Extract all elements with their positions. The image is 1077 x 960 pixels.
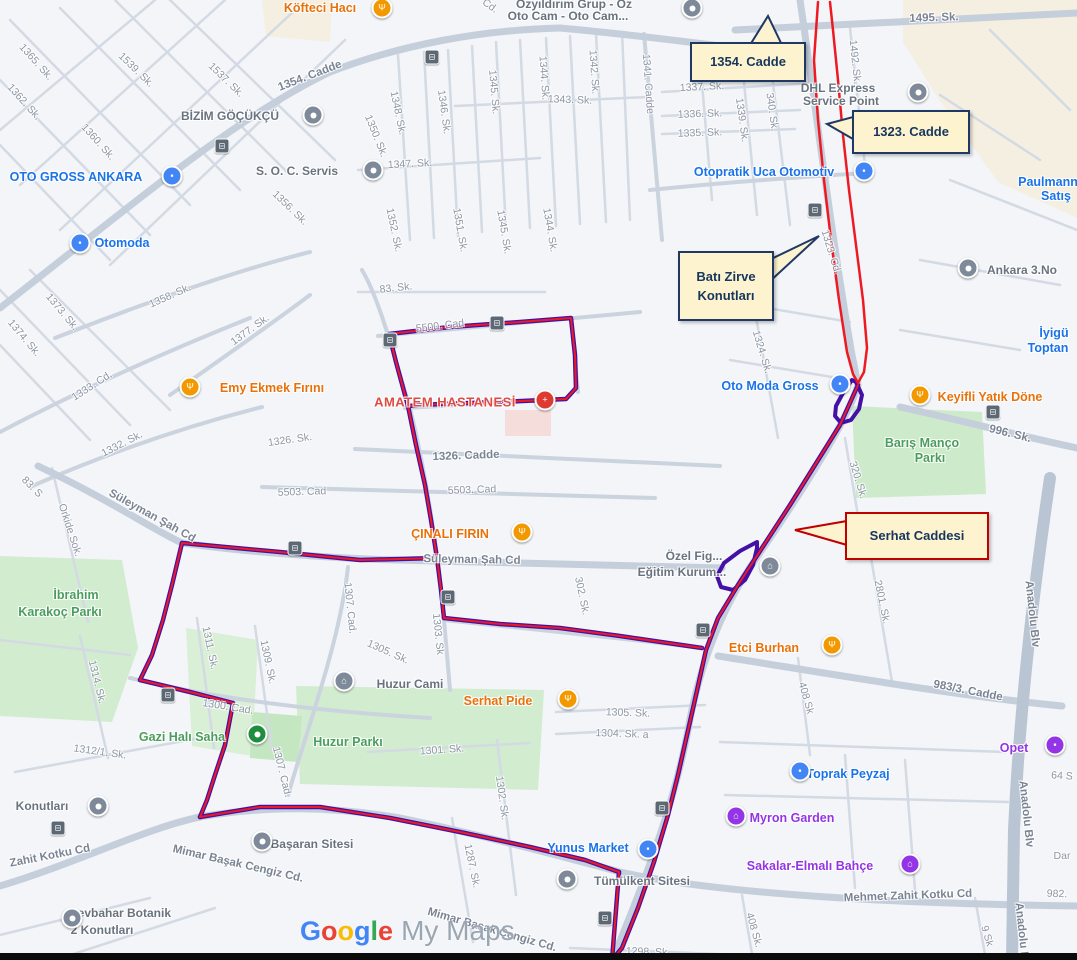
bus-stop-icon[interactable]: ⊟ (288, 541, 303, 556)
google-my-maps-watermark: Google My Maps (300, 915, 515, 947)
route-line-red[interactable] (814, 2, 867, 383)
route-line-purple[interactable] (408, 406, 444, 618)
garden-marker[interactable]: ⌂ (900, 854, 921, 875)
annotation-callout-text: Batı Zirve (696, 267, 755, 287)
sports-field-marker[interactable] (247, 724, 268, 745)
school-marker[interactable]: ⌂ (760, 556, 781, 577)
annotation-callout-text: 1323. Cadde (873, 122, 949, 142)
annotation-callout: 1323. Cadde (852, 110, 970, 154)
restaurant-marker[interactable]: Ψ (180, 377, 201, 398)
annotation-callout-pointer (827, 117, 853, 139)
annotation-callout-text: Serhat Caddesi (870, 526, 965, 546)
annotation-callout-pointer (795, 521, 847, 545)
fuel-station-marker[interactable]: ▪ (1045, 735, 1066, 756)
bus-stop-icon[interactable]: ⊟ (51, 821, 66, 836)
poi-marker[interactable] (908, 82, 929, 103)
restaurant-marker[interactable]: Ψ (558, 689, 579, 710)
restaurant-marker[interactable]: Ψ (822, 635, 843, 656)
google-logo-letter: e (378, 916, 393, 946)
bus-stop-icon[interactable]: ⊟ (598, 911, 613, 926)
bottom-edge-bar (0, 953, 1077, 960)
store-marker[interactable]: ▪ (70, 233, 91, 254)
google-logo-letter: l (371, 916, 379, 946)
restaurant-marker[interactable]: Ψ (910, 385, 931, 406)
store-marker[interactable]: ▪ (162, 166, 183, 187)
google-logo: Google (300, 916, 393, 947)
poi-marker[interactable] (557, 869, 578, 890)
mosque-marker[interactable]: ⌂ (334, 671, 355, 692)
map-canvas[interactable]: 1365. Sk.1539. Sk.1537. Sk.1362. Sk.1360… (0, 0, 1077, 960)
bus-stop-icon[interactable]: ⊟ (696, 623, 711, 638)
bus-stop-icon[interactable]: ⊟ (383, 333, 398, 348)
bus-stop-icon[interactable]: ⊟ (441, 590, 456, 605)
my-maps-label: My Maps (401, 915, 515, 947)
bus-stop-icon[interactable]: ⊟ (808, 203, 823, 218)
annotation-callout-text: 1354. Cadde (710, 52, 786, 72)
route-layer[interactable] (140, 2, 867, 960)
poi-marker[interactable] (363, 160, 384, 181)
annotation-callout: Batı ZirveKonutları (678, 251, 774, 321)
annotation-callout: 1354. Cadde (690, 42, 806, 82)
poi-marker[interactable] (958, 258, 979, 279)
annotation-callout-pointer (767, 236, 819, 284)
store-marker[interactable]: ▪ (638, 839, 659, 860)
google-logo-letter: o (338, 916, 355, 946)
bus-stop-icon[interactable]: ⊟ (161, 688, 176, 703)
poi-marker[interactable] (62, 908, 83, 929)
bus-stop-icon[interactable]: ⊟ (215, 139, 230, 154)
store-marker[interactable]: ▪ (854, 161, 875, 182)
store-marker[interactable]: ▪ (790, 761, 811, 782)
restaurant-marker[interactable]: Ψ (512, 522, 533, 543)
google-logo-letter: g (354, 916, 371, 946)
poi-marker[interactable] (88, 796, 109, 817)
bus-stop-icon[interactable]: ⊟ (490, 316, 505, 331)
hospital-marker[interactable]: + (535, 390, 556, 411)
poi-marker[interactable] (303, 105, 324, 126)
store-marker[interactable]: ▪ (830, 374, 851, 395)
annotation-callout: Serhat Caddesi (845, 512, 989, 560)
annotation-callout-text: Konutları (697, 286, 754, 306)
google-logo-letter: o (321, 916, 338, 946)
bus-stop-icon[interactable]: ⊟ (655, 801, 670, 816)
route-line-purple[interactable] (140, 543, 182, 680)
poi-marker[interactable] (252, 831, 273, 852)
garden-marker[interactable]: ⌂ (726, 806, 747, 827)
bus-stop-icon[interactable]: ⊟ (425, 50, 440, 65)
google-logo-letter: G (300, 916, 321, 946)
bus-stop-icon[interactable]: ⊟ (986, 405, 1001, 420)
